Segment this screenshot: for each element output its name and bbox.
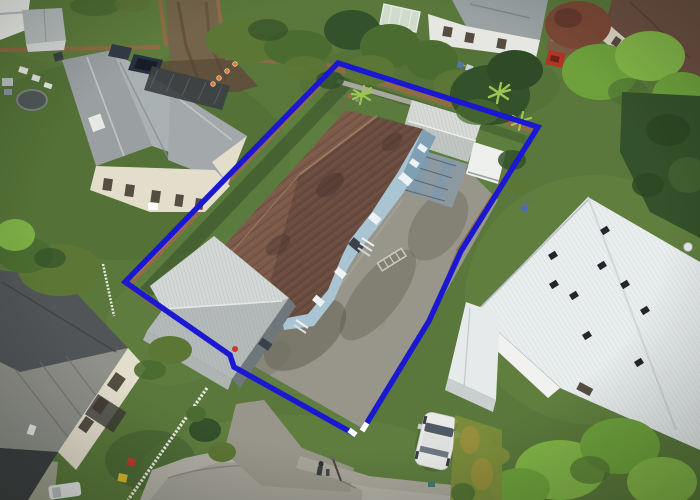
vignette: [0, 0, 700, 500]
aerial-photo: [0, 0, 700, 500]
aerial-photo-stage: [0, 0, 700, 500]
